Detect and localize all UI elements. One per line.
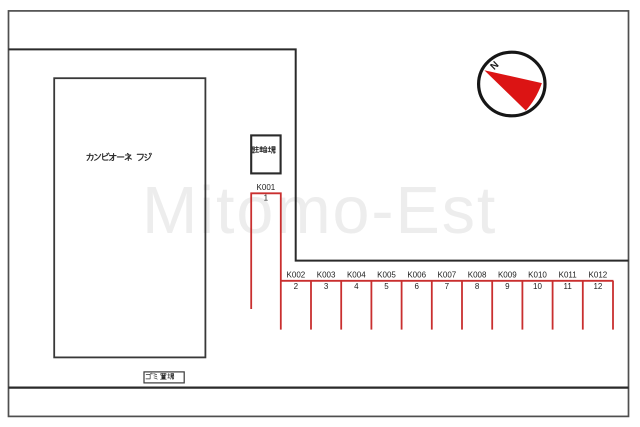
svg-text:K002: K002 <box>287 270 306 279</box>
svg-text:K008: K008 <box>468 270 487 279</box>
svg-text:2: 2 <box>294 282 299 291</box>
svg-text:6: 6 <box>414 282 419 291</box>
svg-text:K005: K005 <box>377 270 396 279</box>
svg-text:N: N <box>489 60 502 73</box>
svg-text:K010: K010 <box>528 270 547 279</box>
svg-text:8: 8 <box>475 282 480 291</box>
svg-text:7: 7 <box>445 282 450 291</box>
svg-text:1: 1 <box>264 193 269 202</box>
svg-text:K009: K009 <box>498 270 517 279</box>
svg-text:K011: K011 <box>559 270 578 279</box>
svg-text:9: 9 <box>505 282 510 291</box>
svg-text:5: 5 <box>384 282 389 291</box>
svg-text:K001: K001 <box>257 183 276 192</box>
svg-text:K004: K004 <box>347 270 366 279</box>
svg-text:10: 10 <box>533 282 542 291</box>
svg-text:K012: K012 <box>589 270 608 279</box>
svg-text:11: 11 <box>564 282 573 291</box>
svg-text:Mitomo-Est: Mitomo-Est <box>142 174 497 248</box>
svg-text:K003: K003 <box>317 270 336 279</box>
svg-text:K006: K006 <box>407 270 426 279</box>
svg-text:12: 12 <box>593 282 602 291</box>
svg-text:4: 4 <box>354 282 359 291</box>
svg-text:K007: K007 <box>438 270 457 279</box>
svg-text:3: 3 <box>324 282 329 291</box>
